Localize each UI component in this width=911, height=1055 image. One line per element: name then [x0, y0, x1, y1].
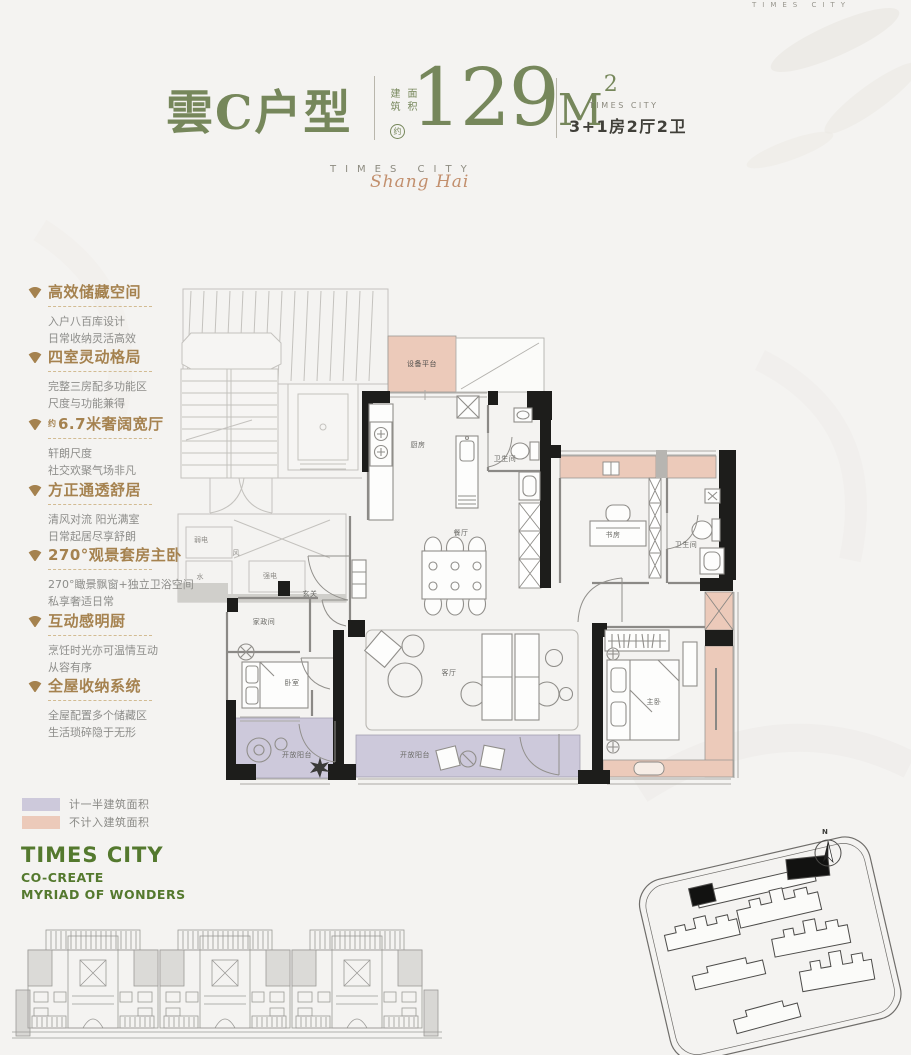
dashed-rule: [48, 569, 152, 570]
fan-icon: [28, 351, 42, 363]
feature-item-kitchen: 互动感明厨 烹饪时光亦可温情互动 从容有序: [28, 610, 210, 676]
dashed-rule: [48, 371, 152, 372]
room-label-study: 书房: [606, 530, 621, 540]
feature-item-storage: 高效储藏空间 入户八百库设计 日常收纳灵活高效: [28, 281, 210, 347]
shaft-label-strong-power: 强电: [263, 571, 277, 581]
feature-title: 高效储藏空间: [48, 281, 141, 302]
dashed-rule: [48, 700, 152, 701]
site-plan: [634, 832, 906, 1055]
dashed-rule: [48, 504, 152, 505]
room-label-balcony-center: 开放阳台: [400, 750, 430, 760]
feature-item-layout: 四室灵动格局 完整三房配多功能区 尺度与功能兼得: [28, 346, 210, 412]
room-label-equipment-platform: 设备平台: [407, 359, 437, 369]
room-label-kitchen: 厨房: [411, 440, 426, 450]
footer-tagline: MYRIAD OF WONDERS: [21, 887, 186, 902]
legend-label: 不计入建筑面积: [69, 814, 150, 830]
north-label: N: [822, 828, 828, 836]
room-label-bathroom-2: 卫生间: [675, 540, 698, 550]
feature-item-whole-house-storage: 全屋收纳系统 全屋配置多个储藏区 生活琐碎隐于无形: [28, 675, 210, 741]
feature-title: 四室灵动格局: [48, 346, 141, 367]
approx-prefix: 约: [48, 418, 56, 429]
feature-title: 全屋收纳系统: [48, 675, 141, 696]
header-divider: [556, 78, 557, 138]
feature-line: 轩朗尺度: [48, 445, 210, 462]
fan-icon: [28, 680, 42, 692]
header-divider: [374, 76, 375, 140]
feature-line: 完整三房配多功能区: [48, 378, 210, 395]
feature-line: 270°瞰景飘窗+独立卫浴空间: [48, 576, 210, 593]
fan-icon: [28, 484, 42, 496]
feature-item-master-suite: 270°观景套房主卧 270°瞰景飘窗+独立卫浴空间 私享奢适日常: [28, 544, 210, 610]
feature-item-ventilation: 方正通透舒居 清风对流 阳光满室 日常起居尽享舒朗: [28, 479, 210, 545]
brand-caption: TIMES CITY: [589, 101, 659, 110]
feature-item-living-hall: 约 6.7米奢阔宽厅 轩朗尺度 社交欢聚气场非凡: [28, 413, 210, 479]
room-label-laundry: 家政间: [253, 617, 276, 627]
feature-title: 互动感明厨: [48, 610, 126, 631]
room-label-living: 客厅: [442, 668, 457, 678]
room-label-dining: 餐厅: [454, 528, 469, 538]
purple-balconies: [230, 718, 580, 778]
legend-item-excluded-area: 不计入建筑面积: [22, 814, 150, 830]
feature-line: 尺度与功能兼得: [48, 395, 210, 412]
footer-brand: TIMES CITY: [21, 843, 164, 867]
corner-watermark: TIMES CITY: [752, 1, 851, 9]
shaft-label-weak-power: 弱电: [194, 535, 208, 545]
feature-line: 生活琐碎隐于无形: [48, 724, 210, 741]
legend-label: 计一半建筑面积: [69, 796, 150, 812]
room-label-master-bedroom: 主卧: [647, 697, 662, 707]
dashed-rule: [48, 635, 152, 636]
fan-icon: [28, 286, 42, 298]
floorplan-poster: TIMES CITY 雲C户型 建筑 面积 约 129M2 TIMES CITY…: [0, 0, 911, 1055]
approx-badge: 约: [390, 124, 405, 139]
legend-swatch-purple: [22, 798, 60, 811]
footer-tagline: CO-CREATE: [21, 870, 104, 885]
fan-icon: [28, 418, 42, 430]
feature-line: 社交欢聚气场非凡: [48, 462, 210, 479]
fan-icon: [28, 549, 42, 561]
dashed-rule: [48, 438, 152, 439]
area-exponent: 2: [604, 72, 618, 97]
dashed-rule: [48, 306, 152, 307]
room-label-foyer: 玄关: [303, 589, 318, 599]
unit-title: 雲C户型: [166, 74, 352, 143]
room-label-bedroom: 卧室: [285, 678, 300, 688]
shaft-label-vent: 风: [233, 548, 240, 558]
feature-title: 方正通透舒居: [48, 479, 141, 500]
feature-title: 270°观景套房主卧: [48, 544, 182, 565]
legend-item-half-area: 计一半建筑面积: [22, 796, 150, 812]
unit-spec: 3+1房2厅2卫: [569, 113, 687, 137]
fan-icon: [28, 615, 42, 627]
legend-swatch-pink: [22, 816, 60, 829]
white-platform: [456, 338, 544, 392]
feature-line: 清风对流 阳光满室: [48, 511, 210, 528]
brand-script: Shang Hai: [370, 172, 469, 192]
feature-line: 入户八百库设计: [48, 313, 210, 330]
feature-line: 烹饪时光亦可温情互动: [48, 642, 210, 659]
feature-line: 从容有序: [48, 659, 210, 676]
room-label-balcony-left: 开放阳台: [282, 750, 312, 760]
shaft-label-water: 水: [197, 572, 204, 582]
feature-title: 6.7米奢阔宽厅: [58, 413, 164, 434]
feature-line: 日常起居尽享舒朗: [48, 528, 210, 545]
feature-line: 日常收纳灵活高效: [48, 330, 210, 347]
area-number: 129: [411, 51, 558, 144]
feature-line: 全屋配置多个储藏区: [48, 707, 210, 724]
room-label-bathroom-1: 卫生间: [494, 454, 517, 464]
key-plan-elevation: [12, 930, 442, 1038]
feature-line: 私享奢适日常: [48, 593, 210, 610]
area-label-col: 建筑: [386, 88, 401, 114]
